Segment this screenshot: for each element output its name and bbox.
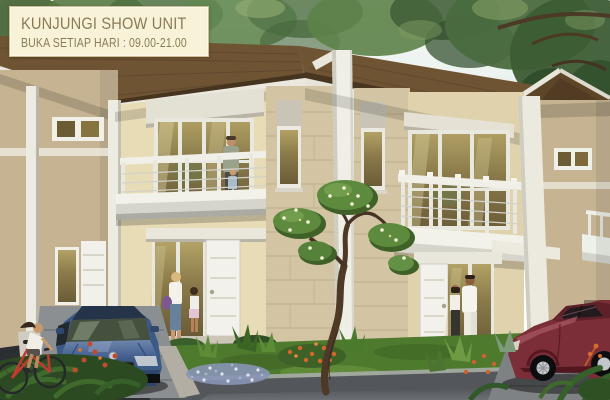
banner-title: KUNJUNGI SHOW UNIT: [21, 13, 187, 34]
banner-subtitle: BUKA SETIAP HARI : 09.00-21.00: [21, 36, 187, 51]
window-hood: [276, 100, 302, 126]
house-rendering: B 1883 B: [0, 0, 610, 400]
promo-banner: KUNJUNGI SHOW UNIT BUKA SETIAP HARI : 09…: [9, 6, 209, 57]
neighbor-upper-window: [52, 117, 104, 141]
front-door: [206, 240, 240, 336]
show-unit-advertisement: B 1883 B: [0, 0, 610, 400]
